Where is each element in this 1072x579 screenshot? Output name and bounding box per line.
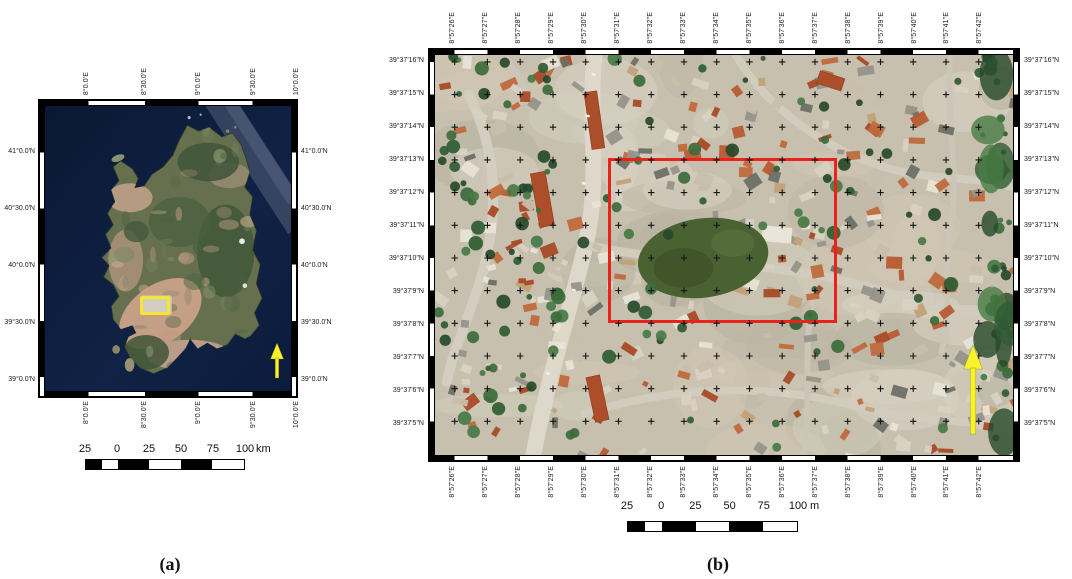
lat-tick-label-right-a: 39°30.0'N: [301, 318, 332, 327]
lat-tick-label-left-b: 39°37'16"N: [352, 56, 424, 65]
lon-tick-label-bottom-b: 8°57'41"E: [942, 466, 951, 498]
scalebar-a-segment: [118, 460, 150, 469]
scalebar-a-segment: [149, 460, 181, 469]
map-a-overlay: [40, 101, 296, 396]
lon-tick-label-bottom-b: 8°57'29"E: [547, 466, 556, 498]
lat-tick-label-right-b: 39°37'10"N: [1024, 254, 1059, 263]
lon-tick-label-top-b: 8°57'36"E: [778, 12, 787, 44]
scalebar-a-tick-label: 25: [143, 443, 155, 455]
lat-tick-label-right-b: 39°37'14"N: [1024, 122, 1059, 131]
lon-tick-label-bottom-b: 8°57'42"E: [975, 466, 984, 498]
lon-tick-label-bottom-a: 10°0.0'E: [292, 401, 301, 428]
lat-tick-label-right-b: 39°37'11"N: [1024, 221, 1059, 230]
lon-tick-label-bottom-b: 8°57'33"E: [679, 466, 688, 498]
lat-tick-label-left-b: 39°37'6"N: [352, 386, 424, 395]
map-b-overlay: [430, 50, 1018, 460]
scalebar-a-segment: [212, 460, 244, 469]
lon-tick-label-top-b: 8°57'29"E: [547, 12, 556, 44]
lon-tick-label-top-b: 8°57'40"E: [910, 12, 919, 44]
scalebar-a-segment: [86, 460, 102, 469]
map-b-frame: [428, 48, 1020, 462]
lon-tick-label-bottom-b: 8°57'37"E: [811, 466, 820, 498]
lat-tick-label-left-b: 39°37'8"N: [352, 320, 424, 329]
lat-tick-label-left-a: 40°30.0'N: [1, 204, 35, 213]
scalebar-b-segment: [628, 522, 645, 531]
lon-tick-label-top-b: 8°57'35"E: [745, 12, 754, 44]
lat-tick-label-right-a: 40°30.0'N: [301, 204, 332, 213]
scalebar-b-tick-label: 0: [658, 500, 664, 512]
lon-tick-label-bottom-a: 8°0.0'E: [82, 401, 91, 424]
scalebar-a-segment: [102, 460, 118, 469]
lon-tick-label-bottom-b: 8°57'35"E: [745, 466, 754, 498]
scalebar-a-tick-label: 100: [236, 443, 254, 455]
lon-tick-label-top-a: 9°0.0'E: [194, 72, 203, 95]
lon-tick-label-top-b: 8°57'34"E: [712, 12, 721, 44]
lon-tick-label-top-b: 8°57'37"E: [811, 12, 820, 44]
lon-tick-label-bottom-b: 8°57'31"E: [613, 466, 622, 498]
lon-tick-label-bottom-b: 8°57'30"E: [580, 466, 589, 498]
lon-tick-label-top-b: 8°57'30"E: [580, 12, 589, 44]
lon-tick-label-top-b: 8°57'27"E: [481, 12, 490, 44]
figure-canvas: 8°0.0'E8°0.0'E8°30.0'E8°30.0'E9°0.0'E9°0…: [0, 0, 1072, 579]
scalebar-b-segment: [763, 522, 797, 531]
scalebar-a-unit: km: [256, 443, 271, 455]
scalebar-b-segment: [729, 522, 763, 531]
lon-tick-label-top-b: 8°57'31"E: [613, 12, 622, 44]
north-arrow-b: [430, 50, 1018, 460]
lon-tick-label-top-a: 8°0.0'E: [82, 72, 91, 95]
scalebar-b-unit: m: [810, 500, 819, 512]
lat-tick-label-right-b: 39°37'8"N: [1024, 320, 1055, 329]
lon-tick-label-top-b: 8°57'38"E: [844, 12, 853, 44]
scalebar-b-tick-label: 25: [689, 500, 701, 512]
scalebar-b-segment: [696, 522, 730, 531]
north-arrow-a: [40, 101, 296, 396]
lat-tick-label-left-b: 39°37'12"N: [352, 188, 424, 197]
panel-a-caption: (a): [142, 554, 198, 575]
lon-tick-label-top-a: 9°30.0'E: [249, 68, 258, 95]
lon-tick-label-top-b: 8°57'41"E: [942, 12, 951, 44]
lon-tick-label-top-b: 8°57'32"E: [646, 12, 655, 44]
scalebar-a-segment: [181, 460, 213, 469]
lon-tick-label-top-a: 10°0.0'E: [292, 68, 301, 95]
lon-tick-label-bottom-b: 8°57'28"E: [514, 466, 523, 498]
lon-tick-label-top-b: 8°57'26"E: [448, 12, 457, 44]
lon-tick-label-bottom-b: 8°57'36"E: [778, 466, 787, 498]
lon-tick-label-bottom-a: 8°30.0'E: [140, 401, 149, 428]
scalebar-a-tick-label: 25: [79, 443, 91, 455]
lon-tick-label-bottom-b: 8°57'26"E: [448, 466, 457, 498]
scalebar-a-tick-label: 50: [175, 443, 187, 455]
scalebar-a-bar: [85, 459, 245, 470]
lon-tick-label-bottom-b: 8°57'39"E: [877, 466, 886, 498]
scalebar-a-tick-label: 0: [114, 443, 120, 455]
lon-tick-label-top-b: 8°57'33"E: [679, 12, 688, 44]
lat-tick-label-right-b: 39°37'15"N: [1024, 89, 1059, 98]
lat-tick-label-left-b: 39°37'9"N: [352, 287, 424, 296]
scalebar-b-tick-label: 75: [758, 500, 770, 512]
scalebar-b-tick-label: 50: [723, 500, 735, 512]
lat-tick-label-left-b: 39°37'7"N: [352, 353, 424, 362]
lat-tick-label-left-b: 39°37'14"N: [352, 122, 424, 131]
map-a-frame: [38, 99, 298, 398]
lon-tick-label-top-b: 8°57'39"E: [877, 12, 886, 44]
lon-tick-label-bottom-b: 8°57'38"E: [844, 466, 853, 498]
lat-tick-label-right-b: 39°37'13"N: [1024, 155, 1059, 164]
lon-tick-label-bottom-b: 8°57'27"E: [481, 466, 490, 498]
lat-tick-label-left-b: 39°37'10"N: [352, 254, 424, 263]
scalebar-b-segment: [645, 522, 662, 531]
panel-b-caption: (b): [690, 554, 746, 575]
lat-tick-label-right-b: 39°37'9"N: [1024, 287, 1055, 296]
lat-tick-label-left-b: 39°37'15"N: [352, 89, 424, 98]
lat-tick-label-left-b: 39°37'11"N: [352, 221, 424, 230]
lon-tick-label-top-a: 8°30.0'E: [140, 68, 149, 95]
lat-tick-label-left-b: 39°37'13"N: [352, 155, 424, 164]
lon-tick-label-bottom-a: 9°0.0'E: [194, 401, 203, 424]
lat-tick-label-right-a: 40°0.0'N: [301, 261, 328, 270]
lat-tick-label-right-a: 39°0.0'N: [301, 375, 328, 384]
lon-tick-label-top-b: 8°57'42"E: [975, 12, 984, 44]
lat-tick-label-right-b: 39°37'5"N: [1024, 419, 1055, 428]
lon-tick-label-bottom-b: 8°57'34"E: [712, 466, 721, 498]
lat-tick-label-left-b: 39°37'5"N: [352, 419, 424, 428]
lat-tick-label-left-a: 39°30.0'N: [1, 318, 35, 327]
lat-tick-label-right-b: 39°37'7"N: [1024, 353, 1055, 362]
lon-tick-label-bottom-b: 8°57'40"E: [910, 466, 919, 498]
scalebar-b-tick-label: 100: [789, 500, 807, 512]
lat-tick-label-left-a: 39°0.0'N: [1, 375, 35, 384]
lat-tick-label-right-b: 39°37'12"N: [1024, 188, 1059, 197]
scalebar-b-tick-label: 25: [621, 500, 633, 512]
lat-tick-label-right-b: 39°37'6"N: [1024, 386, 1055, 395]
lon-tick-label-bottom-b: 8°57'32"E: [646, 466, 655, 498]
lon-tick-label-top-b: 8°57'28"E: [514, 12, 523, 44]
lat-tick-label-left-a: 40°0.0'N: [1, 261, 35, 270]
scalebar-a-tick-label: 75: [207, 443, 219, 455]
lon-tick-label-bottom-a: 9°30.0'E: [249, 401, 258, 428]
lat-tick-label-right-b: 39°37'16"N: [1024, 56, 1059, 65]
lat-tick-label-right-a: 41°0.0'N: [301, 147, 328, 156]
scalebar-b-segment: [662, 522, 696, 531]
lat-tick-label-left-a: 41°0.0'N: [1, 147, 35, 156]
scalebar-b-bar: [627, 521, 798, 532]
